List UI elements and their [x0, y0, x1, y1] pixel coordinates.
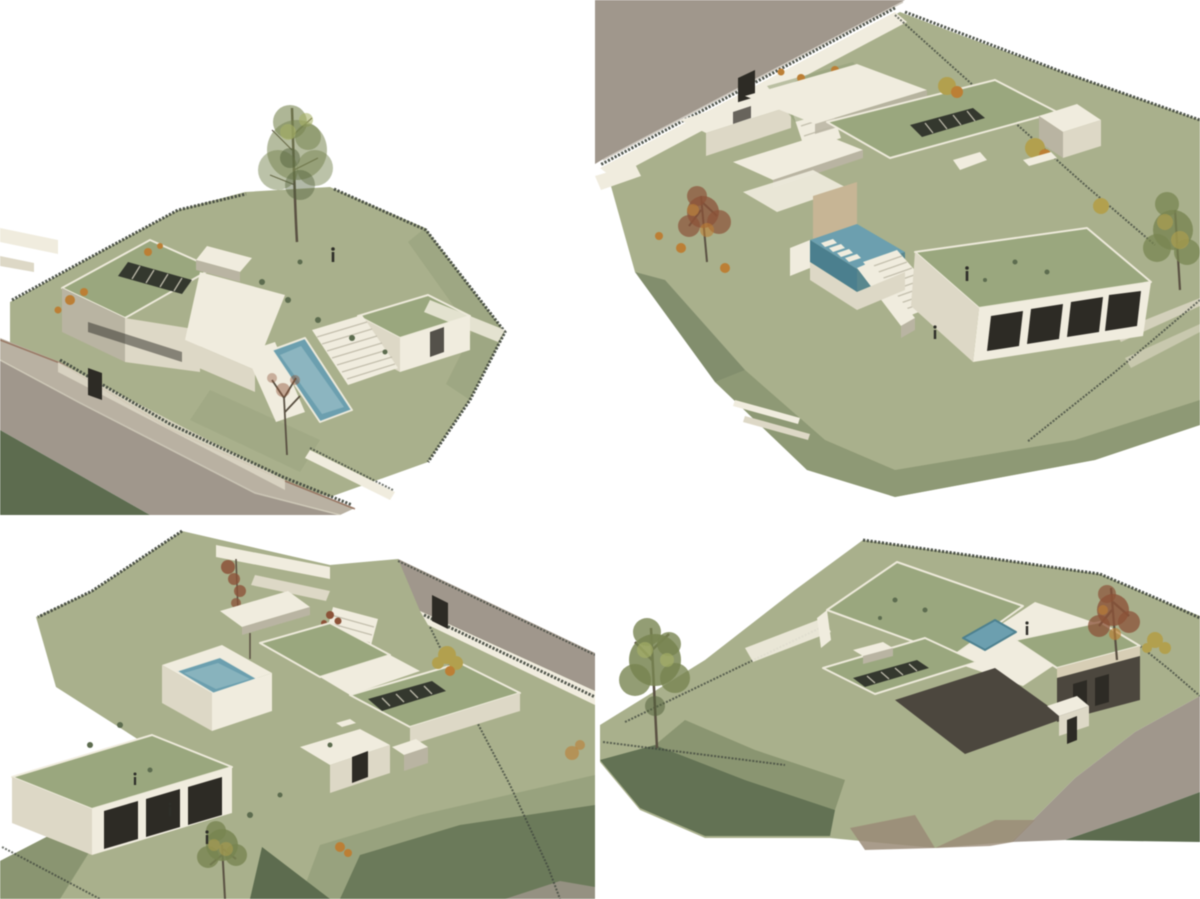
view-3-bottom-left — [0, 515, 595, 899]
person — [1025, 621, 1028, 635]
view-2-top-right — [595, 0, 1200, 510]
person — [331, 247, 335, 262]
entry-door — [1067, 716, 1077, 744]
retaining-wall — [0, 228, 58, 254]
view-4-bottom-right — [595, 510, 1200, 899]
view-1-top-left — [0, 0, 590, 515]
street-gate — [88, 368, 102, 400]
render-grid — [0, 0, 1200, 899]
axonometric-scene-3 — [0, 515, 595, 899]
axonometric-scene-2 — [595, 0, 1200, 510]
axonometric-scene-4 — [595, 510, 1200, 899]
door-opening — [430, 327, 444, 357]
axonometric-scene-1 — [0, 0, 590, 515]
